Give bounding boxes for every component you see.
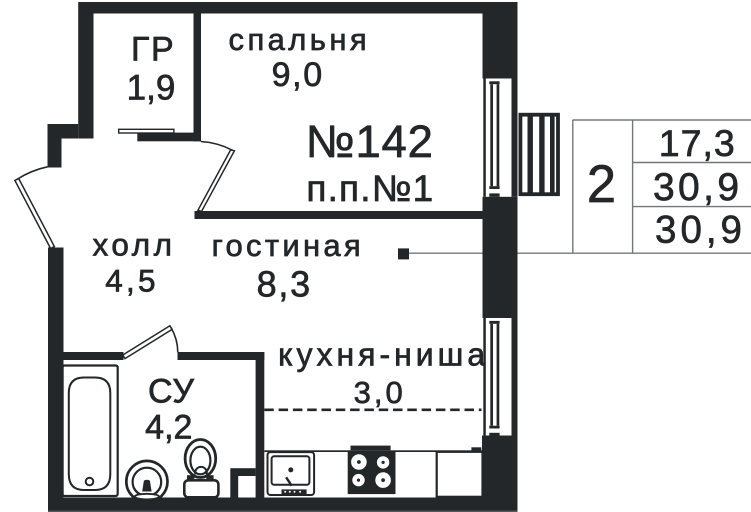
svg-text:СУ: СУ — [148, 373, 195, 411]
svg-text:30,9: 30,9 — [653, 166, 743, 209]
svg-text:гостиная: гостиная — [212, 228, 364, 263]
svg-text:4,5: 4,5 — [105, 263, 158, 299]
svg-text:17,3: 17,3 — [659, 122, 736, 164]
svg-text:ГР: ГР — [131, 31, 175, 69]
svg-text:№142: №142 — [306, 116, 434, 167]
svg-text:1,9: 1,9 — [127, 69, 176, 108]
svg-text:3,0: 3,0 — [354, 375, 406, 410]
svg-text:4,2: 4,2 — [145, 409, 192, 447]
svg-text:30,9: 30,9 — [655, 209, 746, 252]
svg-text:8,3: 8,3 — [257, 263, 312, 304]
svg-text:холл: холл — [93, 227, 176, 263]
svg-text:спальня: спальня — [229, 22, 370, 57]
svg-text:9,0: 9,0 — [272, 56, 324, 94]
svg-text:п.п.№1: п.п.№1 — [306, 168, 434, 209]
svg-text:2: 2 — [587, 155, 616, 214]
svg-text:кухня-ниша: кухня-ниша — [278, 337, 489, 373]
